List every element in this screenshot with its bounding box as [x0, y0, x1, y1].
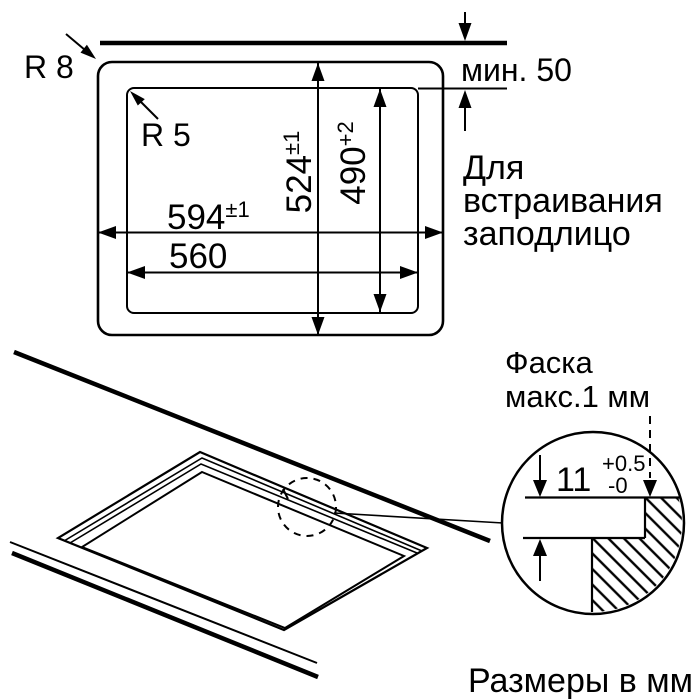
flush-note-line3: заподлицо	[463, 215, 631, 253]
r8-label: R 8	[24, 49, 74, 85]
r5-leader-line	[134, 95, 158, 119]
worktop-back-edge-line	[14, 352, 490, 541]
dim-min50: мин. 50	[459, 12, 572, 131]
arrowhead-right-icon	[425, 226, 443, 239]
arrowhead-down-icon	[459, 23, 472, 41]
dim-524: 524±1	[279, 63, 325, 335]
arrowhead-up-icon	[312, 63, 325, 81]
dim-490-label: 490+2	[333, 121, 373, 205]
arrowhead-right-icon	[400, 266, 418, 279]
arrowhead-down-icon	[312, 317, 325, 335]
dim-560: 560	[127, 237, 418, 279]
arrowhead-down-icon	[533, 480, 547, 497]
dim-524-label: 524±1	[279, 131, 319, 214]
outer-cutout-rect	[98, 62, 443, 335]
installation-diagram: мин. 50 R 8 R 5 594±1 560	[0, 0, 700, 700]
callout-r5: R 5	[130, 91, 191, 153]
diagram-canvas: мин. 50 R 8 R 5 594±1 560	[0, 0, 700, 700]
dim-560-label: 560	[169, 237, 227, 276]
flush-mount-note: Для встраивания заподлицо	[463, 149, 663, 253]
arrowhead-left-icon	[127, 266, 145, 279]
arrowhead-up-icon	[533, 539, 547, 556]
cutout-recess-outline	[58, 452, 427, 630]
arrowhead-up-icon	[374, 89, 387, 107]
cutout-step-line-1	[64, 458, 422, 551]
isometric-view	[10, 352, 503, 677]
arrowhead-down-icon	[374, 294, 387, 312]
arrowhead-left-icon	[98, 226, 116, 239]
dim-min50-label: мин. 50	[461, 52, 572, 88]
dim-594: 594±1	[98, 197, 443, 239]
dim-11-tol-minus: -0	[608, 473, 628, 498]
detail-view: Фаска макс.1 мм 11 +0.5 -0	[502, 345, 700, 640]
r5-label: R 5	[141, 117, 191, 153]
dim-594-label: 594±1	[167, 197, 250, 237]
plan-view: мин. 50 R 8 R 5 594±1 560	[24, 12, 663, 335]
dim-490: 490+2	[333, 89, 387, 312]
callout-r8: R 8	[24, 34, 96, 85]
r8-leader-line	[66, 34, 85, 50]
arrowhead-up-icon	[459, 90, 472, 108]
worktop-front-edge-line	[12, 553, 318, 677]
worktop-front-edge-top-line	[10, 542, 317, 663]
chamfer-arrowhead-icon	[643, 480, 657, 497]
dim-11-label: 11	[556, 461, 591, 499]
chamfer-note-line1: Фаска	[505, 345, 594, 380]
units-note: Размеры в мм	[468, 662, 693, 700]
chamfer-note-line2: макс.1 мм	[505, 379, 650, 414]
